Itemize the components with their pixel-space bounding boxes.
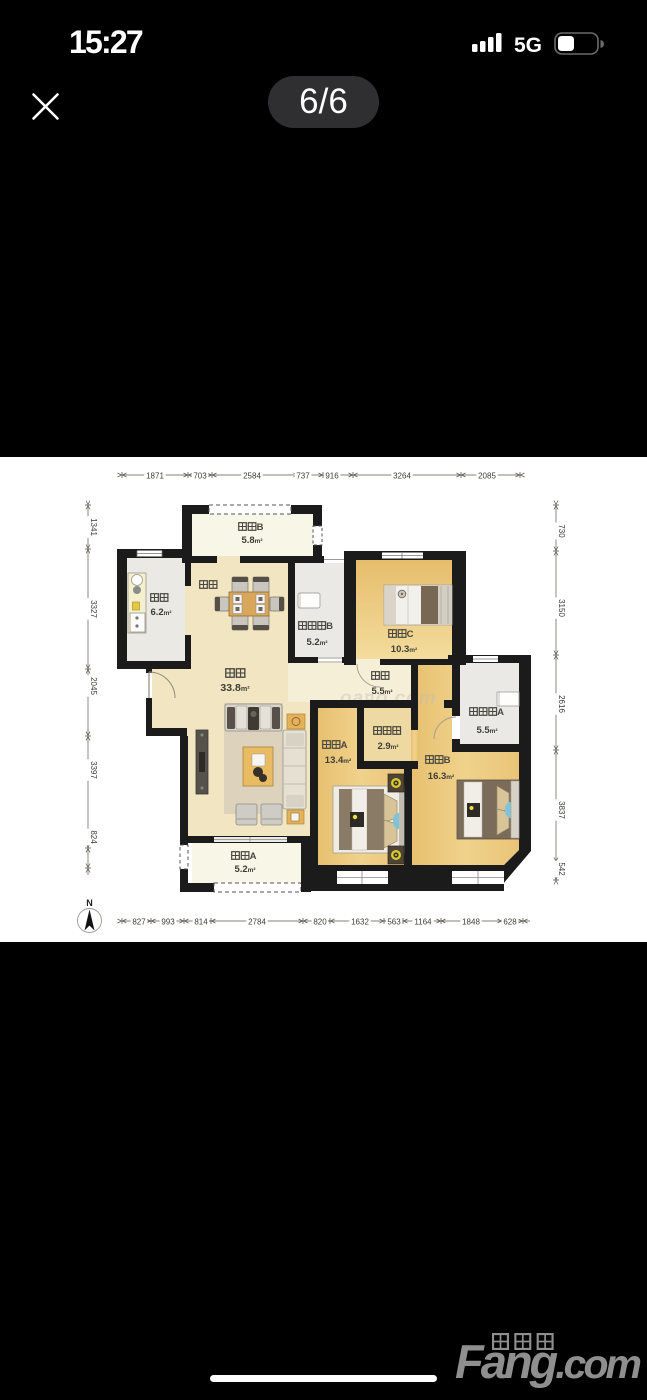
svg-text:2045: 2045 [89, 677, 98, 695]
svg-text:827: 827 [132, 917, 146, 926]
svg-text:3327: 3327 [89, 600, 98, 618]
svg-text:3397: 3397 [89, 761, 98, 779]
svg-text:A: A [497, 707, 504, 718]
svg-text:B: B [444, 755, 451, 766]
svg-text:1632: 1632 [351, 917, 369, 926]
svg-text:A: A [341, 740, 348, 751]
svg-text:3150: 3150 [557, 599, 566, 617]
svg-text:B: B [326, 621, 333, 632]
svg-text:2085: 2085 [478, 471, 496, 480]
svg-text:730: 730 [557, 524, 566, 538]
svg-text:824: 824 [89, 830, 98, 844]
svg-text:542: 542 [557, 862, 566, 876]
svg-text:2784: 2784 [248, 917, 266, 926]
svg-text:993: 993 [161, 917, 175, 926]
svg-text:916: 916 [325, 471, 339, 480]
svg-text:563: 563 [387, 917, 401, 926]
svg-text:1848: 1848 [462, 917, 480, 926]
svg-text:820: 820 [313, 917, 327, 926]
svg-text:3837: 3837 [557, 801, 566, 819]
svg-text:1341: 1341 [89, 518, 98, 536]
svg-text:A: A [250, 851, 257, 862]
svg-text:3264: 3264 [393, 471, 411, 480]
svg-text:628: 628 [503, 917, 517, 926]
svg-text:2584: 2584 [243, 471, 261, 480]
svg-text:N: N [86, 898, 93, 908]
svg-text:737: 737 [296, 471, 310, 480]
svg-text:C: C [407, 629, 414, 640]
svg-text:5G: 5G [514, 34, 542, 57]
svg-text:703: 703 [193, 471, 207, 480]
svg-text:1164: 1164 [414, 917, 432, 926]
svg-text:B: B [257, 522, 264, 533]
svg-text:814: 814 [194, 917, 208, 926]
svg-text:2616: 2616 [557, 695, 566, 713]
svg-text:1871: 1871 [146, 471, 164, 480]
